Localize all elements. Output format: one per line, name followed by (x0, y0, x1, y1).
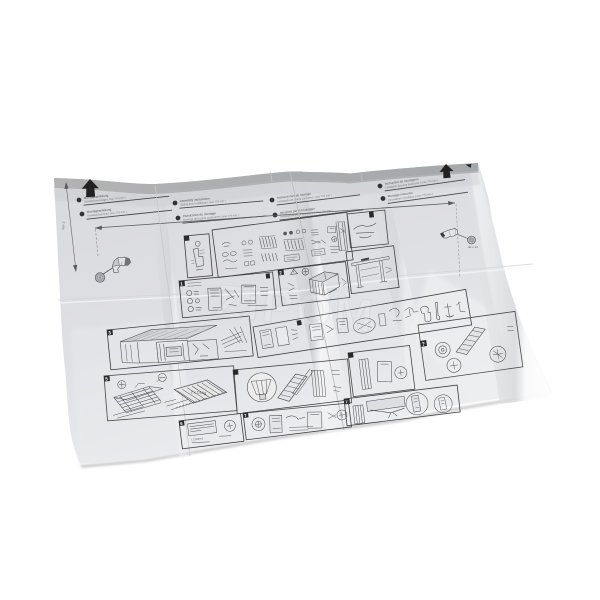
svg-text:40 x 14: 40 x 14 (468, 245, 478, 249)
